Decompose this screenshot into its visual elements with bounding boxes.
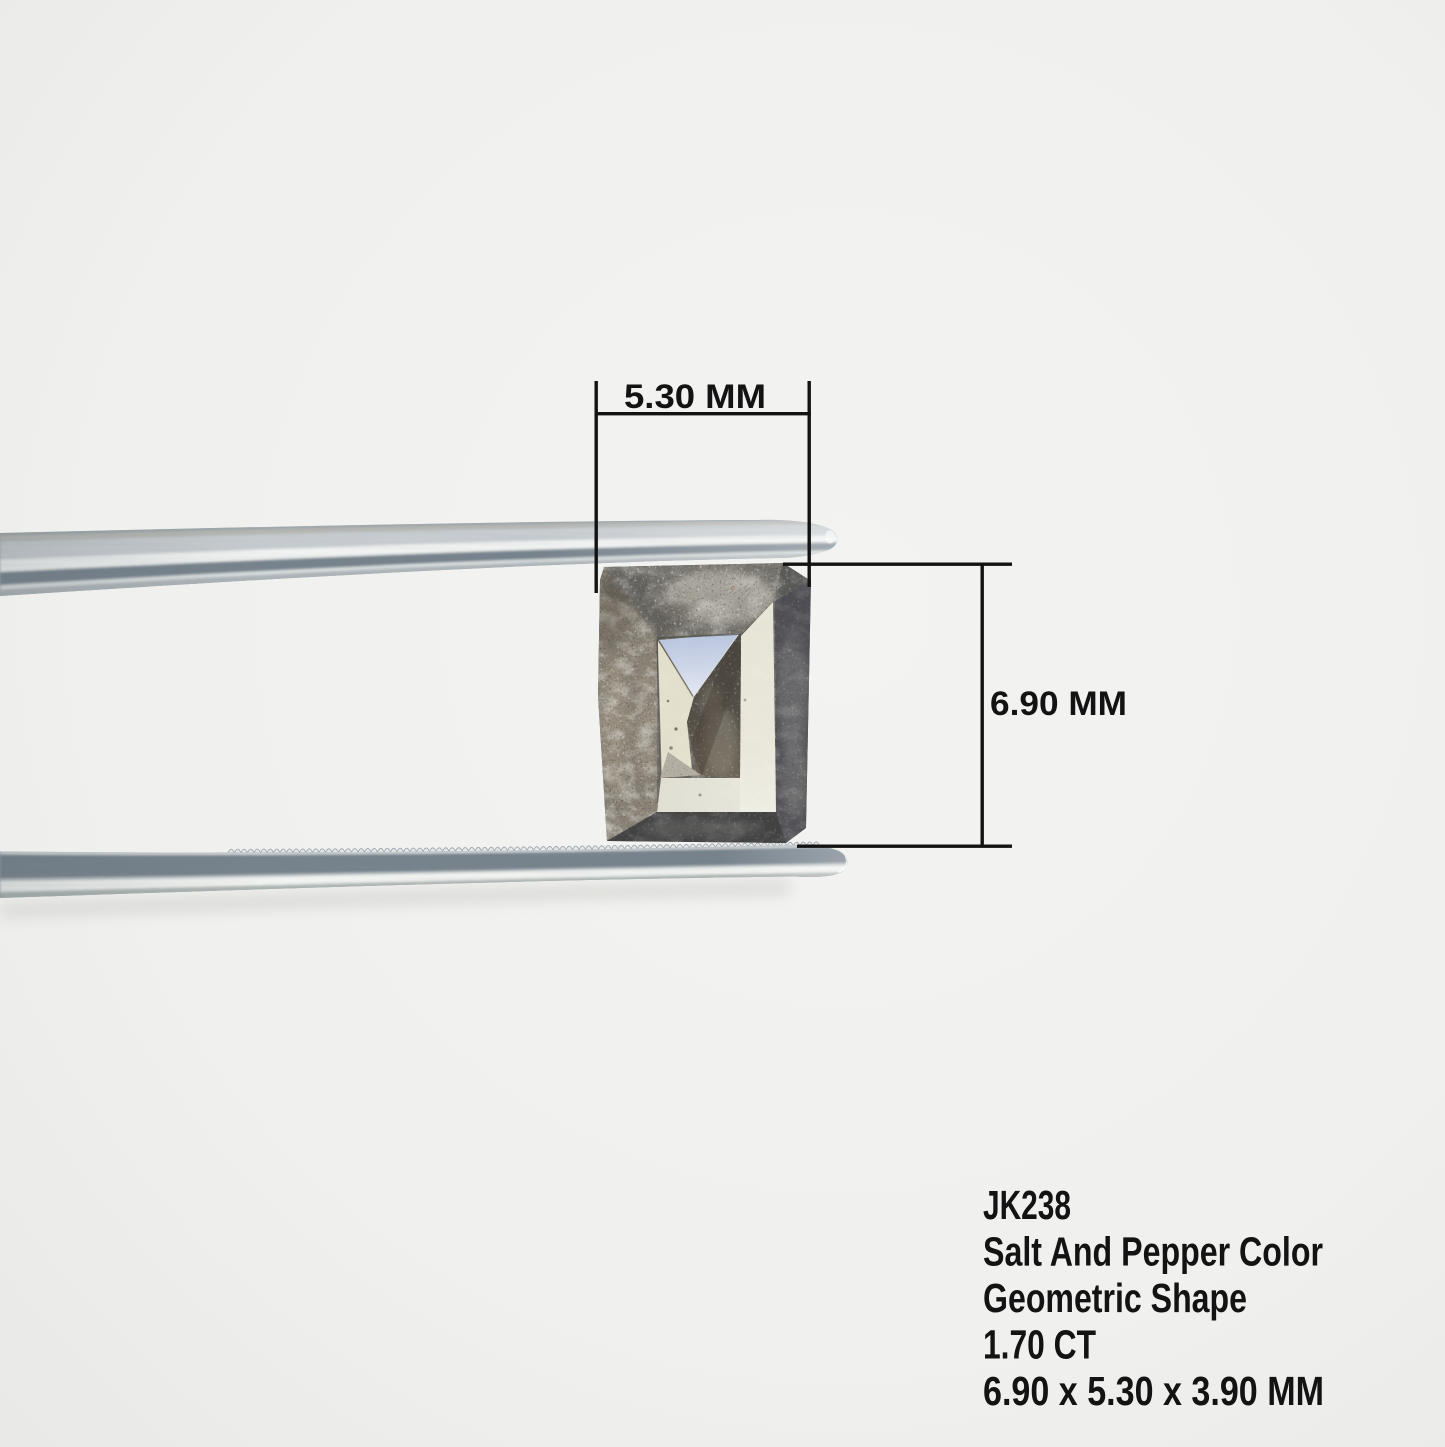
svg-text:Salt And Pepper Color: Salt And Pepper Color [983,1229,1323,1275]
svg-text:JK238: JK238 [983,1182,1071,1228]
svg-text:Geometric Shape: Geometric Shape [983,1275,1247,1321]
svg-text:5.30 MM: 5.30 MM [624,378,766,416]
svg-text:1.70 CT: 1.70 CT [983,1322,1096,1368]
svg-text:6.90 x 5.30 x 3.90 MM: 6.90 x 5.30 x 3.90 MM [983,1368,1324,1414]
svg-text:6.90 MM: 6.90 MM [990,685,1127,723]
